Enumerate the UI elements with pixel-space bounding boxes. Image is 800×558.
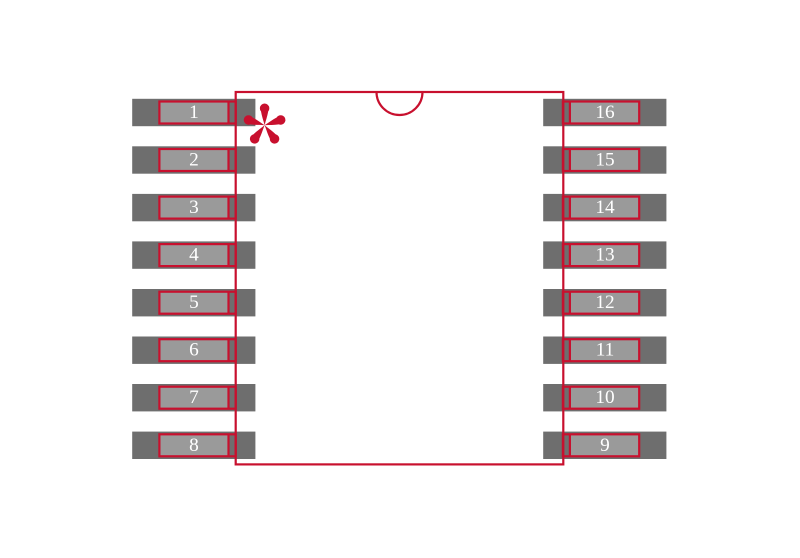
svg-text:10: 10 bbox=[595, 387, 614, 408]
svg-text:11: 11 bbox=[596, 340, 615, 361]
svg-text:15: 15 bbox=[595, 150, 614, 171]
svg-text:14: 14 bbox=[595, 197, 615, 218]
svg-text:9: 9 bbox=[600, 435, 610, 456]
svg-text:2: 2 bbox=[189, 150, 199, 171]
svg-text:4: 4 bbox=[189, 245, 199, 266]
svg-text:1: 1 bbox=[189, 102, 199, 123]
svg-text:12: 12 bbox=[595, 292, 614, 313]
svg-text:3: 3 bbox=[189, 197, 199, 218]
svg-text:16: 16 bbox=[595, 102, 615, 123]
svg-text:5: 5 bbox=[189, 292, 199, 313]
svg-text:6: 6 bbox=[189, 340, 199, 361]
svg-text:7: 7 bbox=[189, 387, 199, 408]
svg-text:13: 13 bbox=[595, 245, 614, 266]
svg-text:8: 8 bbox=[189, 435, 199, 456]
